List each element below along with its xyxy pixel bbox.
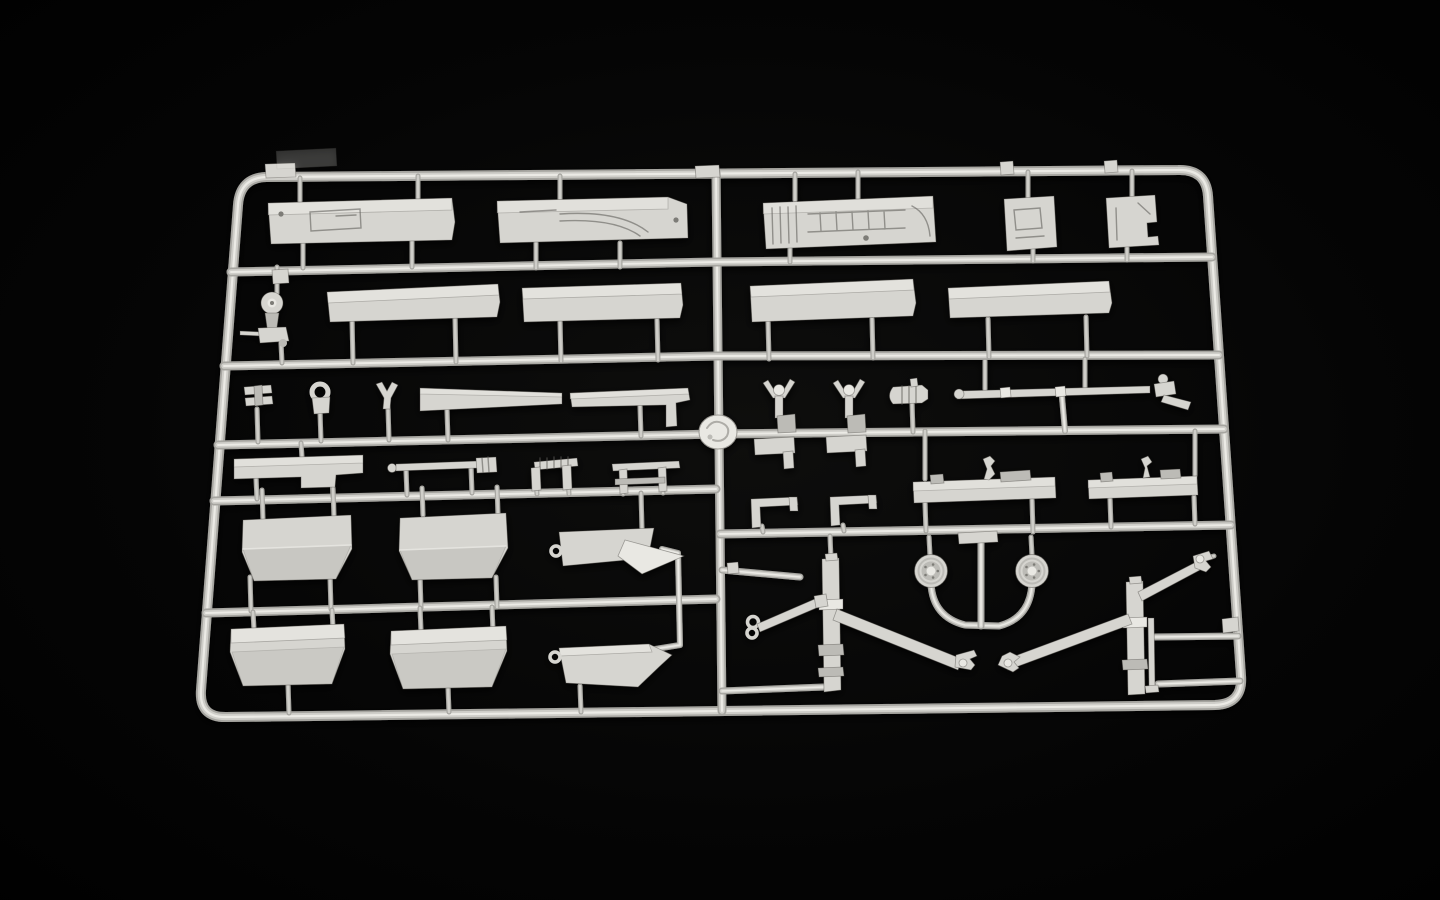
part-seat-bracket-hook: [868, 495, 877, 509]
sprue-gate: [912, 403, 913, 432]
sprue-gate: [1086, 317, 1087, 356]
sprue-gate: [496, 577, 497, 607]
part-hole: [673, 217, 678, 222]
part-wheel-lug: [932, 563, 935, 566]
sprue-gate: [925, 503, 926, 531]
part-beam-fitting: [930, 474, 944, 484]
part-wheel-lug: [1033, 576, 1036, 579]
part-trail-cap: [825, 553, 838, 561]
part-wheel-hub: [927, 567, 936, 576]
part-tow-fork-knob: [844, 385, 855, 396]
part-tow-fork-leg: [845, 396, 853, 418]
part-muzzle-brake-knob: [910, 378, 918, 387]
part-angle-plate-leg: [783, 451, 794, 469]
part-gun-knob: [388, 464, 397, 473]
sprue-gate: [657, 320, 658, 360]
sprue-gate: [256, 478, 257, 499]
part-mortar-leg: [531, 467, 541, 491]
part-seat-bracket-hook: [789, 497, 798, 511]
sprue-gate: [455, 317, 456, 362]
sprue-gate: [640, 406, 641, 436]
part-hood-panel-1-shade: [232, 647, 344, 686]
part-wheel-lug: [924, 566, 927, 569]
sprue-gate: [448, 687, 449, 712]
sprue-gate: [420, 577, 421, 608]
part-trail-collar: [818, 667, 844, 677]
sprue-gate: [250, 577, 251, 611]
part-arm-knuckle: [1196, 555, 1204, 563]
molding-tab: [695, 165, 720, 178]
part-strut-knuckle: [959, 659, 967, 667]
part-mortar-leg: [562, 465, 572, 490]
sprue-gate: [320, 412, 321, 441]
sprue-gate: [768, 321, 769, 359]
mold-stamp-disc: [699, 415, 737, 449]
sprue-gate: [497, 487, 498, 514]
mold-stamp-dot: [708, 435, 713, 440]
part-wheel-hub: [1028, 567, 1037, 576]
molding-tab: [1104, 160, 1118, 173]
sprue-photo: [0, 0, 1440, 900]
part-wheel-lug: [1025, 574, 1028, 577]
sprue-gate: [762, 526, 763, 532]
part-tow-fork-step: [847, 414, 866, 433]
sprue-gate: [352, 319, 353, 363]
sprue-gate: [560, 321, 561, 361]
part-shackle-body: [312, 397, 330, 414]
runner-stub-rail-upper: [1155, 636, 1238, 637]
part-crank-body: [1154, 381, 1176, 397]
molding-tab: [1000, 161, 1014, 175]
sprue-gate: [420, 608, 421, 630]
part-wheel-lug: [924, 574, 927, 577]
part-wheel-lug: [1033, 563, 1036, 566]
sprue-gate: [1032, 500, 1033, 532]
part-beam-fitting: [1000, 470, 1031, 482]
part-wheel-lug: [932, 576, 935, 579]
sprue-gate: [257, 409, 258, 442]
sprue-gate: [301, 443, 302, 457]
part-pulley-hole: [270, 301, 274, 305]
part-strut-knuckle: [1004, 659, 1012, 667]
part-wheel-lug: [1038, 570, 1041, 573]
part-axle-rod-cap: [954, 389, 964, 399]
sprue-gate: [1110, 499, 1111, 527]
sprue-gate: [406, 470, 407, 495]
sprue-gate: [843, 525, 844, 531]
sprue-gate: [872, 319, 873, 358]
sprue-gate: [333, 488, 334, 516]
sprue-gate: [288, 684, 289, 713]
sprue-gate: [471, 467, 472, 493]
molding-tab: [727, 562, 739, 574]
sprue-gate: [262, 490, 263, 519]
part-clamp-web: [254, 385, 263, 406]
part-trail-collar: [818, 644, 844, 656]
part-trail-cap: [1129, 576, 1142, 584]
part-axle-joint: [1000, 387, 1011, 398]
sprue-gate: [447, 410, 448, 440]
part-hole: [278, 211, 283, 216]
part-tow-fork-step: [777, 414, 796, 433]
molding-tab-ghost: [276, 148, 337, 169]
part-muzzle-block: [476, 457, 497, 473]
sprue-gate: [1031, 537, 1032, 555]
part-gearbox-block: [1004, 196, 1057, 251]
sprue-gate: [988, 319, 989, 357]
part-axle-joint: [1055, 386, 1066, 397]
part-cab-panel-2-shade: [400, 546, 506, 580]
part-wheel-lug: [1025, 566, 1028, 569]
part-cab-panel-1-shade: [243, 545, 351, 581]
part-small-plate: [958, 531, 998, 544]
part-trail-collar: [1122, 659, 1148, 670]
part-towbar-clevis: [814, 594, 828, 608]
part-tow-fork-leg: [775, 396, 783, 418]
part-side-rod-foot: [1145, 685, 1159, 693]
part-wheel-lug: [937, 570, 940, 573]
part-rail-bracket: [1222, 617, 1239, 633]
part-mount-block: [1106, 195, 1159, 248]
part-tow-fork-knob: [774, 385, 785, 396]
sprue-gate: [422, 488, 423, 515]
part-angle-plate-leg: [855, 449, 866, 467]
part-bracket-tab: [272, 269, 289, 284]
sprue-gate: [641, 493, 642, 529]
part-hole: [863, 235, 869, 241]
part-side-rod: [1148, 618, 1155, 688]
sprue-gate: [253, 612, 254, 629]
part-beam-fitting: [1160, 469, 1181, 479]
sprue-gate: [330, 576, 331, 609]
sprue-gate: [580, 686, 581, 712]
part-hood-panel-2-shade: [392, 649, 506, 689]
part-mg-wheel: [279, 339, 287, 347]
sprue-gate: [388, 407, 389, 440]
sprue-gate: [1194, 497, 1195, 524]
part-beam-fitting: [1100, 472, 1113, 482]
photo-stage: [0, 0, 1440, 900]
sprue-gate: [929, 537, 930, 555]
